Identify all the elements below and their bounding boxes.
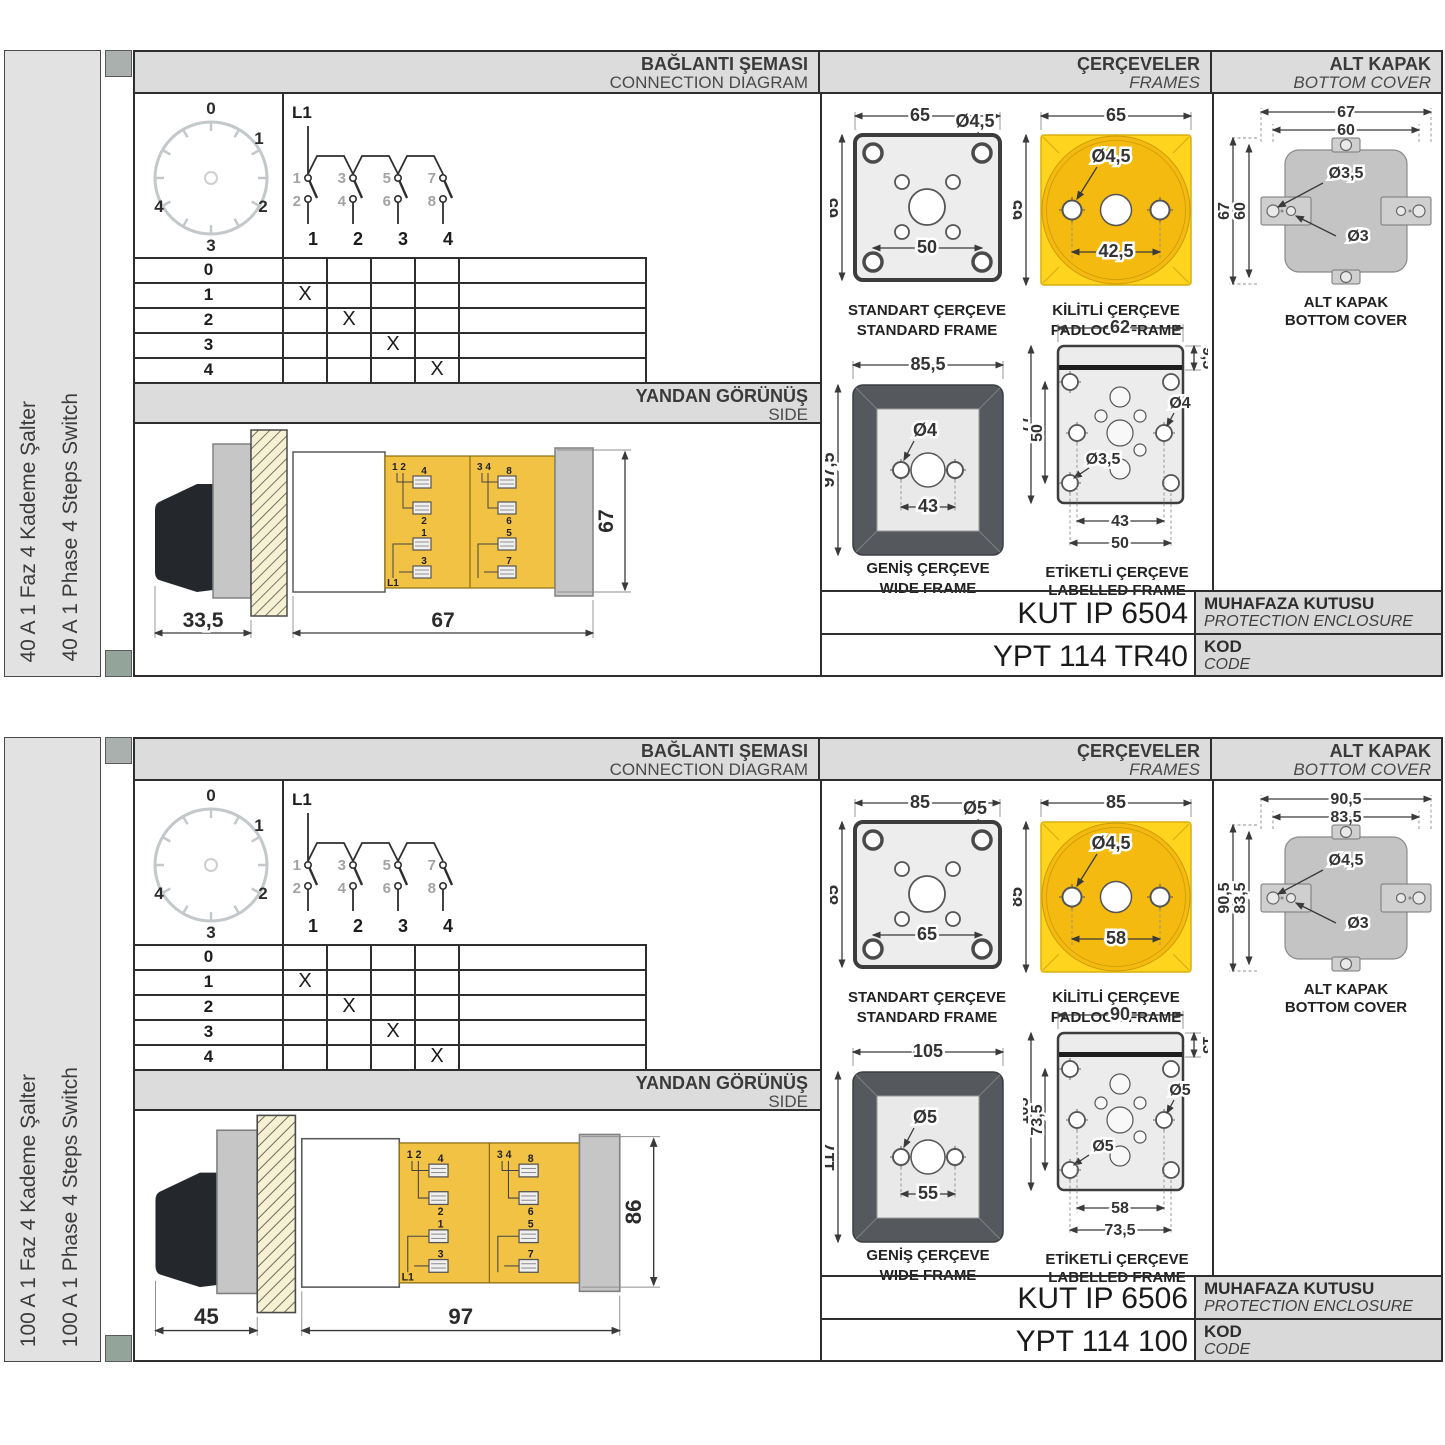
enclosure-label-tr: MUHAFAZA KUTUSU	[1204, 594, 1441, 613]
pole-4: 4	[443, 916, 453, 936]
datasheet-panel: BAĞLANTI ŞEMASI CONNECTION DIAGRAM ÇERÇE…	[133, 737, 1443, 1362]
mark-cell: X	[328, 309, 372, 332]
row-label: 0	[135, 946, 284, 969]
dim-height: 85	[1013, 887, 1026, 907]
pair-label-right: 3 4	[497, 1149, 512, 1161]
terminal-no: 7	[528, 1248, 534, 1260]
mark-cell	[328, 334, 372, 357]
terminal-4: 4	[338, 880, 347, 897]
dial-pos-3: 3	[206, 923, 215, 942]
pole-3: 3	[398, 916, 408, 936]
switch-front-body	[302, 1139, 400, 1287]
mark-cell	[372, 971, 416, 994]
terminal-no: 6	[506, 516, 512, 527]
divider-diagram-frames	[820, 94, 822, 590]
enclosure-row: KUT IP 6504 MUHAFAZA KUTUSU PROTECTION E…	[820, 590, 1441, 633]
dim-height: 65	[830, 198, 842, 218]
mark-cell	[284, 1046, 328, 1069]
row-label: 4	[135, 359, 284, 382]
header-frames-en: FRAMES	[820, 74, 1200, 92]
labelled-frame-drawing: 62 9,5 77 50	[1023, 316, 1208, 606]
terminal-no: 3	[421, 556, 427, 567]
dim-span-b: 50	[1111, 535, 1129, 552]
terminal-3: 3	[338, 857, 346, 874]
caption-en: STANDARD FRAME	[857, 1009, 998, 1026]
mark-cell	[284, 309, 328, 332]
dim-span: 65	[917, 924, 937, 944]
enclosure-code: KUT IP 6506	[822, 1277, 1194, 1318]
dim-strip: 9,5	[1199, 347, 1208, 369]
terminal-no: 4	[421, 466, 427, 477]
dim-h-outer: 67	[1216, 202, 1233, 220]
table-row: 3 X	[135, 332, 647, 357]
dim-w-inner: 60	[1337, 122, 1355, 139]
mark-cell	[372, 309, 416, 332]
padlock-frame-drawing: 65 65 Ø4,5	[1013, 100, 1203, 350]
step-position-table: 0 1 X 2 X	[135, 944, 647, 1069]
mark-cell	[416, 309, 460, 332]
dim-span-a: 43	[1111, 513, 1129, 530]
pole-1: 1	[308, 916, 318, 936]
mark-cell	[328, 259, 372, 282]
terminal-5: 5	[383, 857, 391, 874]
mark-cell	[372, 284, 416, 307]
phase-label: L1	[292, 790, 312, 809]
registration-mark-top	[105, 50, 132, 77]
terminal-1: 1	[293, 170, 301, 187]
dim-hole: Ø5	[913, 1107, 937, 1127]
dim-height: 97,5	[825, 452, 838, 487]
dim-span-a: 58	[1111, 1200, 1129, 1217]
terminal-no: 3	[438, 1248, 444, 1260]
empty-cell	[460, 996, 647, 1019]
empty-cell	[460, 284, 647, 307]
table-row: 3 X	[135, 1019, 647, 1044]
product-name-turkish: 100 A 1 Faz 4 Kademe Şalter	[17, 1074, 41, 1347]
mark-cell	[372, 946, 416, 969]
dim-height: 67	[595, 509, 618, 532]
header-cover-tr: ALT KAPAK	[1212, 741, 1431, 761]
switch-dial: 0 1 2 3 4	[135, 94, 284, 257]
mark-cell: X	[416, 359, 460, 382]
phase-terminal-label: L1	[387, 578, 399, 589]
terminal-3: 3	[338, 170, 346, 187]
contact-bridges	[308, 843, 443, 861]
contact-bridges	[308, 156, 443, 174]
dim-w-inner: 83,5	[1330, 809, 1361, 826]
switch-dial: 0 1 2 3 4	[135, 781, 284, 944]
mark-cell	[372, 259, 416, 282]
bottom-cover-drawing: 90,5 83,5 90,5 83,5 Ø4,	[1203, 785, 1438, 1020]
dial-pos-0: 0	[206, 99, 215, 118]
table-row: 0	[135, 257, 647, 282]
code-row: YPT 114 100 KOD CODE	[820, 1318, 1441, 1360]
terminal-2: 2	[293, 880, 301, 897]
mark-cell	[328, 359, 372, 382]
terminal-5: 5	[383, 170, 391, 187]
dim-hole: Ø4,5	[1091, 833, 1130, 853]
caption-tr: STANDART ÇERÇEVE	[848, 989, 1006, 1006]
pole-2: 2	[353, 916, 363, 936]
header-diagram-en: CONNECTION DIAGRAM	[135, 74, 808, 92]
pole-2: 2	[353, 229, 363, 249]
terminal-no: 1	[421, 528, 427, 539]
dim-hole-b: Ø3	[1347, 915, 1368, 932]
mark-cell: X	[372, 334, 416, 357]
wide-frame-drawing: 105 117 Ø5	[825, 1034, 1025, 1299]
dim-hole-a: Ø4	[1169, 395, 1190, 412]
terminal-no: 5	[528, 1219, 534, 1231]
side-view-header: YANDAN GÖRÜNÜŞ SIDE	[135, 382, 820, 424]
terminal-7: 7	[428, 170, 436, 187]
empty-cell	[460, 334, 647, 357]
mark-cell	[328, 1021, 372, 1044]
dim-height: 117	[825, 1142, 838, 1171]
circuit-schematic: L1	[284, 94, 820, 257]
dim-depth: 33,5	[183, 609, 224, 632]
table-row: 4 X	[135, 357, 647, 382]
dim-w-outer: 67	[1337, 104, 1355, 121]
pair-label-left: 1 2	[407, 1149, 422, 1161]
terminal-6: 6	[383, 880, 391, 897]
pole-1: 1	[308, 229, 318, 249]
dial-pos-1: 1	[254, 129, 263, 148]
divider-diagram-frames	[820, 781, 822, 1275]
product-code: YPT 114 100	[822, 1320, 1194, 1360]
circuit-cell: L1	[284, 781, 820, 944]
dim-width: 85	[910, 792, 930, 812]
mark-cell	[328, 971, 372, 994]
standard-frame-drawing: 65 Ø4,5 65 50 STANDART ÇERÇEVE STANDARD …	[830, 100, 1020, 350]
table-row: 2 X	[135, 307, 647, 332]
mark-cell	[284, 359, 328, 382]
dial-pos-1: 1	[254, 816, 263, 835]
caption-en: BOTTOM COVER	[1285, 312, 1407, 328]
dim-width: 85	[1106, 792, 1126, 812]
mark-cell: X	[328, 996, 372, 1019]
terminal-8: 8	[428, 880, 436, 897]
code-label-en: CODE	[1204, 656, 1441, 674]
mark-cell	[328, 284, 372, 307]
dim-hole-a: Ø4,5	[1329, 852, 1364, 869]
dim-length: 97	[448, 1304, 473, 1329]
registration-mark-top	[105, 737, 132, 764]
row-label: 2	[135, 996, 284, 1019]
mark-cell	[416, 1021, 460, 1044]
bottom-cover-drawing: 67 60 67 60 Ø3,5	[1203, 98, 1438, 333]
table-row: 1 X	[135, 282, 647, 307]
mark-cell	[416, 971, 460, 994]
caption-tr: ETİKETLİ ÇERÇEVE	[1045, 1251, 1188, 1268]
table-row: 2 X	[135, 994, 647, 1019]
side-view-drawing: 1 2 4 2	[147, 428, 667, 668]
empty-cell	[460, 359, 647, 382]
dim-width: 65	[910, 105, 930, 125]
dim-length: 67	[431, 609, 454, 632]
front-plate	[217, 1130, 257, 1293]
dim-hole: Ø5	[963, 798, 987, 818]
empty-cell	[460, 309, 647, 332]
mark-cell	[372, 996, 416, 1019]
dial-pos-4: 4	[154, 884, 164, 903]
header-frames-en: FRAMES	[820, 761, 1200, 779]
empty-cell	[460, 946, 647, 969]
pole-3: 3	[398, 229, 408, 249]
back-plate	[555, 448, 593, 596]
terminal-2: 2	[293, 193, 301, 210]
dim-hole-b: Ø5	[1092, 1138, 1113, 1155]
dim-h-inner: 60	[1232, 202, 1249, 220]
dial-pos-2: 2	[258, 197, 267, 216]
front-plate	[213, 444, 251, 598]
registration-mark-bottom	[105, 1335, 132, 1362]
header-frames-tr: ÇERÇEVELER	[820, 54, 1200, 74]
mark-cell	[284, 259, 328, 282]
dial-pos-3: 3	[206, 236, 215, 255]
caption-tr: ALT KAPAK	[1304, 981, 1389, 998]
header-frames: ÇERÇEVELER FRAMES	[820, 739, 1212, 781]
mark-cell	[372, 359, 416, 382]
code-label-tr: KOD	[1204, 1322, 1441, 1341]
dim-hole: Ø4,5	[955, 111, 994, 131]
dim-height: 65	[1013, 200, 1026, 220]
dim-width: 90	[1110, 1004, 1130, 1024]
dim-h-outer: 90,5	[1216, 882, 1233, 913]
pair-label-right: 3 4	[477, 462, 491, 473]
switch-handle	[155, 484, 213, 592]
dim-height: 86	[621, 1199, 646, 1224]
mark-cell: X	[372, 1021, 416, 1044]
step-position-table: 0 1 X 2 X	[135, 257, 647, 382]
datasheet-panel: BAĞLANTI ŞEMASI CONNECTION DIAGRAM ÇERÇE…	[133, 50, 1443, 677]
dim-strip: 13	[1199, 1036, 1208, 1054]
product-name-turkish: 40 A 1 Faz 4 Kademe Şalter	[17, 401, 41, 663]
enclosure-row: KUT IP 6506 MUHAFAZA KUTUSU PROTECTION E…	[820, 1275, 1441, 1318]
header-cover-tr: ALT KAPAK	[1212, 54, 1431, 74]
header-connection-diagram: BAĞLANTI ŞEMASI CONNECTION DIAGRAM	[135, 52, 820, 94]
terminal-no: 8	[528, 1153, 534, 1165]
header-diagram-en: CONNECTION DIAGRAM	[135, 761, 808, 779]
enclosure-label: MUHAFAZA KUTUSU PROTECTION ENCLOSURE	[1194, 1277, 1441, 1318]
caption-tr: STANDART ÇERÇEVE	[848, 302, 1006, 319]
dim-hole: Ø4	[913, 420, 937, 440]
terminal-6: 6	[383, 193, 391, 210]
phase-label: L1	[292, 103, 312, 122]
mark-cell	[284, 946, 328, 969]
product-name-english: 40 A 1 Phase 4 Steps Switch	[59, 393, 83, 662]
mark-cell	[416, 946, 460, 969]
circuit-cell: L1	[284, 94, 820, 257]
enclosure-label-en: PROTECTION ENCLOSURE	[1204, 613, 1441, 631]
dim-span: 55	[918, 1183, 938, 1203]
mark-cell	[416, 284, 460, 307]
row-label: 0	[135, 259, 284, 282]
empty-cell	[460, 1046, 647, 1069]
caption-tr: GENİŞ ÇERÇEVE	[866, 560, 989, 577]
code-label: KOD CODE	[1194, 1320, 1441, 1360]
header-cover-en: BOTTOM COVER	[1212, 761, 1431, 779]
row-label: 1	[135, 284, 284, 307]
dim-vspan: 73,5	[1029, 1104, 1046, 1135]
table-row: 4 X	[135, 1044, 647, 1069]
dim-hole: Ø4,5	[1091, 146, 1130, 166]
dim-vspan: 50	[1029, 424, 1046, 442]
product-title-panel: 40 A 1 Faz 4 Kademe Şalter 40 A 1 Phase …	[4, 50, 101, 677]
code-label: KOD CODE	[1194, 635, 1441, 675]
pole-4: 4	[443, 229, 453, 249]
mark-cell	[284, 996, 328, 1019]
enclosure-code: KUT IP 6504	[822, 592, 1194, 633]
code-label-tr: KOD	[1204, 637, 1441, 656]
dial-pos-0: 0	[206, 786, 215, 805]
mark-cell	[284, 1021, 328, 1044]
product-title-panel: 100 A 1 Faz 4 Kademe Şalter 100 A 1 Phas…	[4, 737, 101, 1362]
dim-hole-a: Ø3,5	[1329, 165, 1364, 182]
dim-hole-b: Ø3	[1347, 228, 1368, 245]
pair-label-left: 1 2	[392, 462, 406, 473]
code-label-en: CODE	[1204, 1341, 1441, 1359]
mark-cell	[416, 259, 460, 282]
terminal-1: 1	[293, 857, 301, 874]
dial-pos-2: 2	[258, 884, 267, 903]
dim-hole-a: Ø5	[1169, 1082, 1190, 1099]
terminal-no: 2	[421, 516, 427, 527]
header-connection-diagram: BAĞLANTI ŞEMASI CONNECTION DIAGRAM	[135, 739, 820, 781]
header-bottom-cover: ALT KAPAK BOTTOM COVER	[1212, 52, 1441, 94]
dim-span: 43	[918, 496, 938, 516]
caption-tr: ETİKETLİ ÇERÇEVE	[1045, 564, 1188, 581]
registration-mark-bottom	[105, 650, 132, 677]
empty-cell	[460, 259, 647, 282]
terminal-no: 5	[506, 528, 512, 539]
row-label: 3	[135, 334, 284, 357]
side-view-drawing: 1 2 4 2	[147, 1113, 698, 1367]
mark-cell	[416, 334, 460, 357]
empty-cell	[460, 1021, 647, 1044]
product-code: YPT 114 TR40	[822, 635, 1194, 675]
header-bottom-cover: ALT KAPAK BOTTOM COVER	[1212, 739, 1441, 781]
terminal-7: 7	[428, 857, 436, 874]
side-view-header: YANDAN GÖRÜNÜŞ SIDE	[135, 1069, 820, 1111]
dim-span: 58	[1106, 928, 1126, 948]
table-row: 0	[135, 944, 647, 969]
caption-en: BOTTOM COVER	[1285, 999, 1407, 1015]
code-row: YPT 114 TR40 KOD CODE	[820, 633, 1441, 675]
terminal-no: 1	[438, 1219, 444, 1231]
padlock-frame-drawing: 85 85 Ø4,5	[1013, 787, 1203, 1037]
product-name-english: 100 A 1 Phase 4 Steps Switch	[59, 1067, 83, 1347]
terminal-no: 7	[506, 556, 512, 567]
enclosure-label-en: PROTECTION ENCLOSURE	[1204, 1298, 1441, 1316]
labelled-frame-drawing: 90 13 105 73,5	[1023, 1003, 1208, 1293]
row-label: 4	[135, 1046, 284, 1069]
phase-terminal-label: L1	[402, 1272, 414, 1284]
header-cover-en: BOTTOM COVER	[1212, 74, 1431, 92]
mark-cell: X	[416, 1046, 460, 1069]
terminal-no: 8	[506, 466, 512, 477]
dim-height: 85	[830, 885, 842, 905]
dim-width: 105	[913, 1041, 943, 1061]
dim-width: 85,5	[910, 354, 945, 374]
back-plate	[579, 1134, 619, 1291]
caption-tr: ALT KAPAK	[1304, 294, 1389, 311]
terminal-4: 4	[338, 193, 347, 210]
dim-span-b: 73,5	[1104, 1222, 1135, 1239]
dim-hole-b: Ø3,5	[1086, 451, 1121, 468]
empty-cell	[460, 971, 647, 994]
mark-cell: X	[284, 284, 328, 307]
switch-handle	[155, 1173, 216, 1287]
row-label: 2	[135, 309, 284, 332]
terminal-no: 6	[528, 1206, 534, 1218]
dim-span: 42,5	[1098, 241, 1133, 261]
mark-cell	[328, 946, 372, 969]
side-header-en: SIDE	[135, 1093, 808, 1111]
dim-span: 50	[917, 237, 937, 257]
dim-w-outer: 90,5	[1330, 791, 1361, 808]
terminal-no: 4	[438, 1153, 444, 1165]
side-header-tr: YANDAN GÖRÜNÜŞ	[135, 1073, 808, 1093]
enclosure-label: MUHAFAZA KUTUSU PROTECTION ENCLOSURE	[1194, 592, 1441, 633]
switch-dial-cell: 0 1 2 3 4	[135, 94, 284, 257]
mark-cell	[372, 1046, 416, 1069]
side-header-en: SIDE	[135, 406, 808, 424]
enclosure-label-tr: MUHAFAZA KUTUSU	[1204, 1279, 1441, 1298]
mounting-panel	[251, 430, 287, 616]
dim-depth: 45	[194, 1304, 219, 1329]
dim-width: 65	[1106, 105, 1126, 125]
mark-cell	[416, 996, 460, 1019]
product-section: 100 A 1 Faz 4 Kademe Şalter 100 A 1 Phas…	[0, 737, 1445, 1362]
standard-frame-drawing: 85 Ø5 85 65 STANDART ÇERÇEVE STANDARD FR…	[830, 787, 1020, 1037]
wide-frame-drawing: 85,5 97,5 Ø4	[825, 347, 1025, 612]
switch-dial-cell: 0 1 2 3 4	[135, 781, 284, 944]
dim-h-inner: 83,5	[1232, 882, 1249, 913]
circuit-schematic: L1	[284, 781, 820, 944]
dial-pos-4: 4	[154, 197, 164, 216]
mark-cell: X	[284, 971, 328, 994]
dim-width: 62	[1110, 317, 1130, 337]
terminal-8: 8	[428, 193, 436, 210]
side-header-tr: YANDAN GÖRÜNÜŞ	[135, 386, 808, 406]
row-label: 1	[135, 971, 284, 994]
row-label: 3	[135, 1021, 284, 1044]
terminal-no: 2	[438, 1206, 444, 1218]
table-row: 1 X	[135, 969, 647, 994]
product-section: 40 A 1 Faz 4 Kademe Şalter 40 A 1 Phase …	[0, 50, 1445, 677]
switch-front-body	[293, 452, 385, 592]
header-diagram-tr: BAĞLANTI ŞEMASI	[135, 741, 808, 761]
header-frames-tr: ÇERÇEVELER	[820, 741, 1200, 761]
caption-en: STANDARD FRAME	[857, 322, 998, 339]
caption-tr: GENİŞ ÇERÇEVE	[866, 1247, 989, 1264]
mounting-panel	[257, 1115, 295, 1312]
mark-cell	[284, 334, 328, 357]
mark-cell	[328, 1046, 372, 1069]
header-diagram-tr: BAĞLANTI ŞEMASI	[135, 54, 808, 74]
header-frames: ÇERÇEVELER FRAMES	[820, 52, 1212, 94]
